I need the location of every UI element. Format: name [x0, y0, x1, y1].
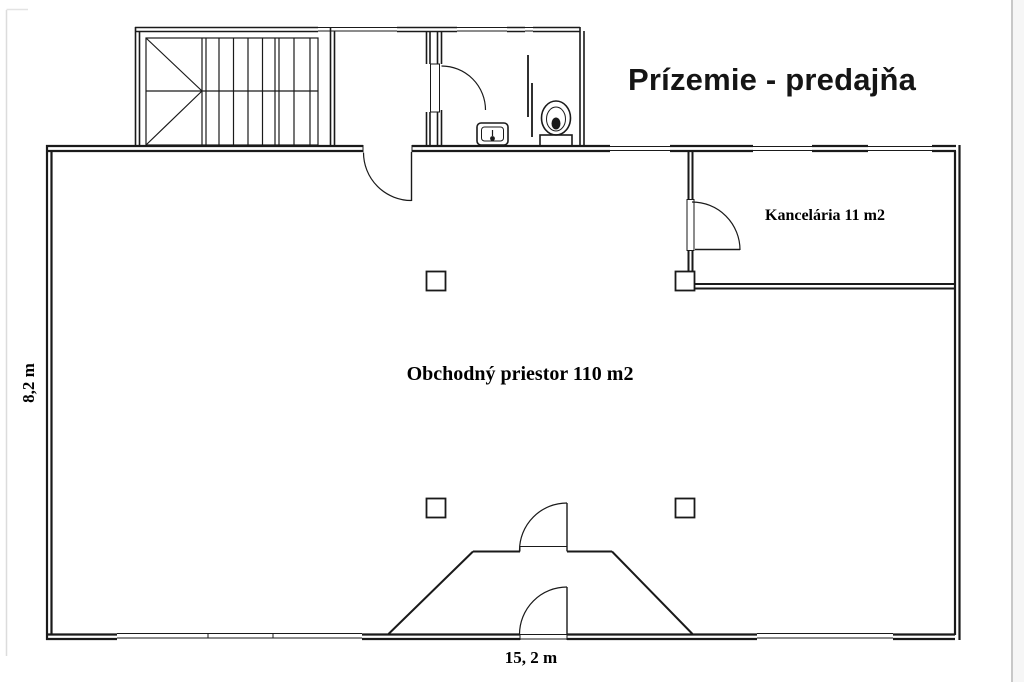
outer-wall-right: [955, 145, 960, 640]
height-dimension-label: 8,2 m: [19, 352, 41, 414]
vestibule-inner-door: [520, 503, 568, 551]
staircase: [146, 38, 318, 145]
wc-door: [431, 64, 486, 112]
floor-plan-page: Prízemie - predajňa Obchodný priestor 11…: [0, 0, 1024, 682]
sink-icon: [477, 123, 508, 145]
outer-wall-top: [46, 145, 956, 152]
toilet-icon: [537, 101, 575, 146]
wc-partition-wall: [528, 55, 532, 137]
office-room-label: Kancelária 11 m2: [715, 207, 935, 225]
outer-wall-left: [47, 145, 52, 640]
column-pillars: [427, 272, 695, 518]
page-title: Prízemie - predajňa: [628, 62, 938, 98]
floor-plan-drawing: [0, 0, 1024, 682]
width-dimension-label: 15, 2 m: [461, 648, 601, 668]
main-entrance-door: [520, 587, 568, 635]
page-edge: [7, 0, 1024, 682]
main-room-top-door: [364, 152, 412, 201]
vestibule: [389, 547, 693, 635]
main-room-label: Obchodný priestor 110 m2: [368, 363, 672, 386]
outer-wall-bottom: [46, 634, 955, 640]
